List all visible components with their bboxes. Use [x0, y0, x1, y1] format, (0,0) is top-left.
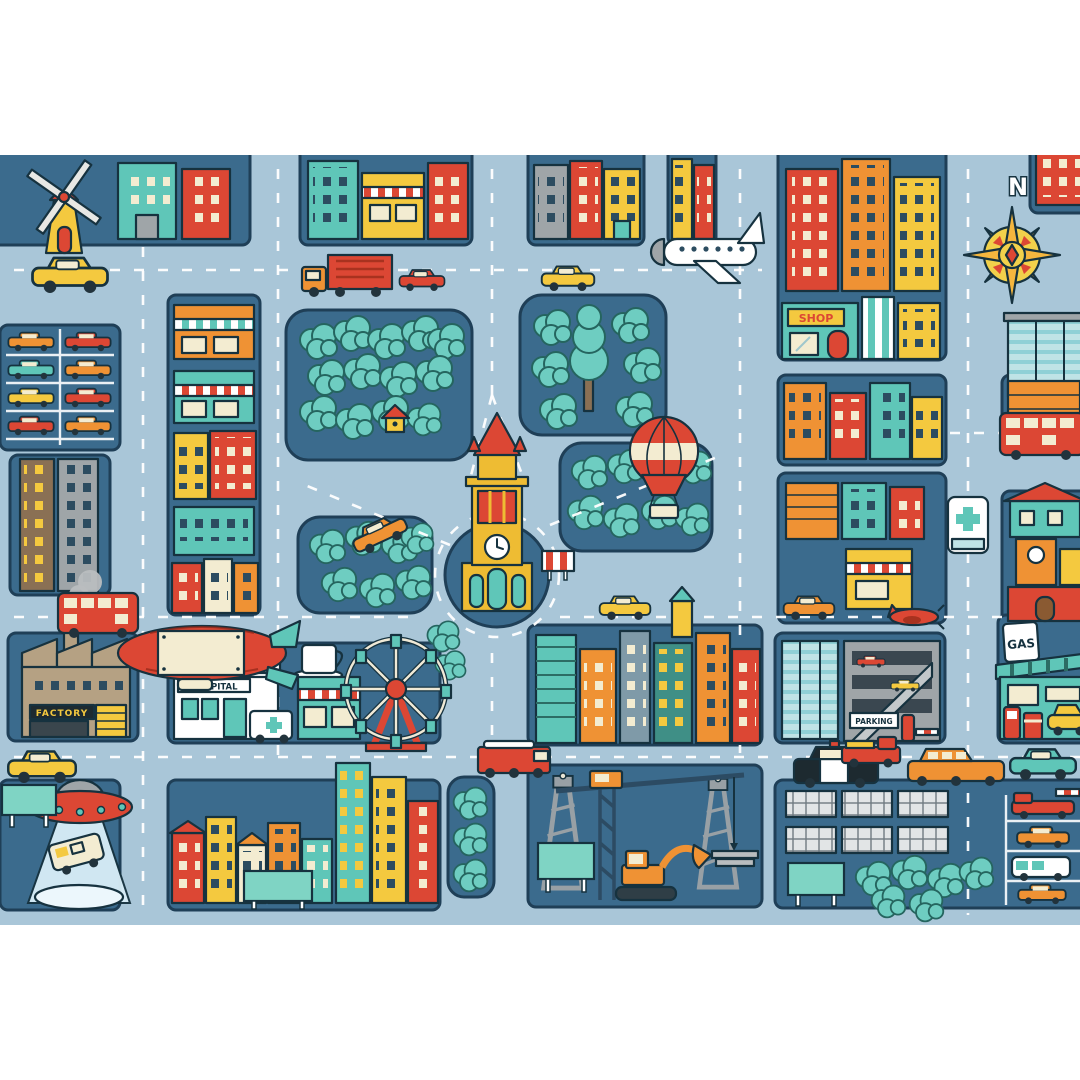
- fire-truck: [478, 741, 550, 778]
- city-bus: [58, 593, 138, 638]
- shop-store: SHOP: [782, 303, 858, 359]
- factory-sign-text: FACTORY: [36, 709, 88, 719]
- mid-left-shops: [172, 305, 258, 613]
- shops-top-left: [118, 163, 230, 239]
- white-van: [1012, 857, 1070, 881]
- ambulance: [250, 711, 292, 744]
- city-map-svg: SHOP N: [0, 155, 1080, 925]
- city-map-illustration: SHOP N: [0, 155, 1080, 925]
- parking-sign-text: PARKING: [855, 717, 892, 726]
- food-stand: [846, 549, 912, 609]
- double-decker-bus: [1000, 413, 1080, 460]
- parking-garage: PARKING: [782, 641, 940, 741]
- compass-north-label: N: [1008, 173, 1028, 201]
- shop-sign-text: SHOP: [799, 312, 834, 325]
- shops-top-mid-left: [308, 161, 468, 239]
- corner-building: [1036, 155, 1080, 205]
- pickup-truck: [842, 737, 900, 768]
- poster-page: SHOP N: [0, 0, 1080, 1080]
- gas-sign-text: GAS: [1007, 636, 1036, 652]
- shops-top-mid: [534, 161, 640, 239]
- farm-houses: [1004, 483, 1080, 621]
- downtown-north-east: SHOP: [782, 159, 940, 359]
- ambulance-van: [948, 497, 988, 553]
- towers-by-airport-road: [672, 159, 714, 239]
